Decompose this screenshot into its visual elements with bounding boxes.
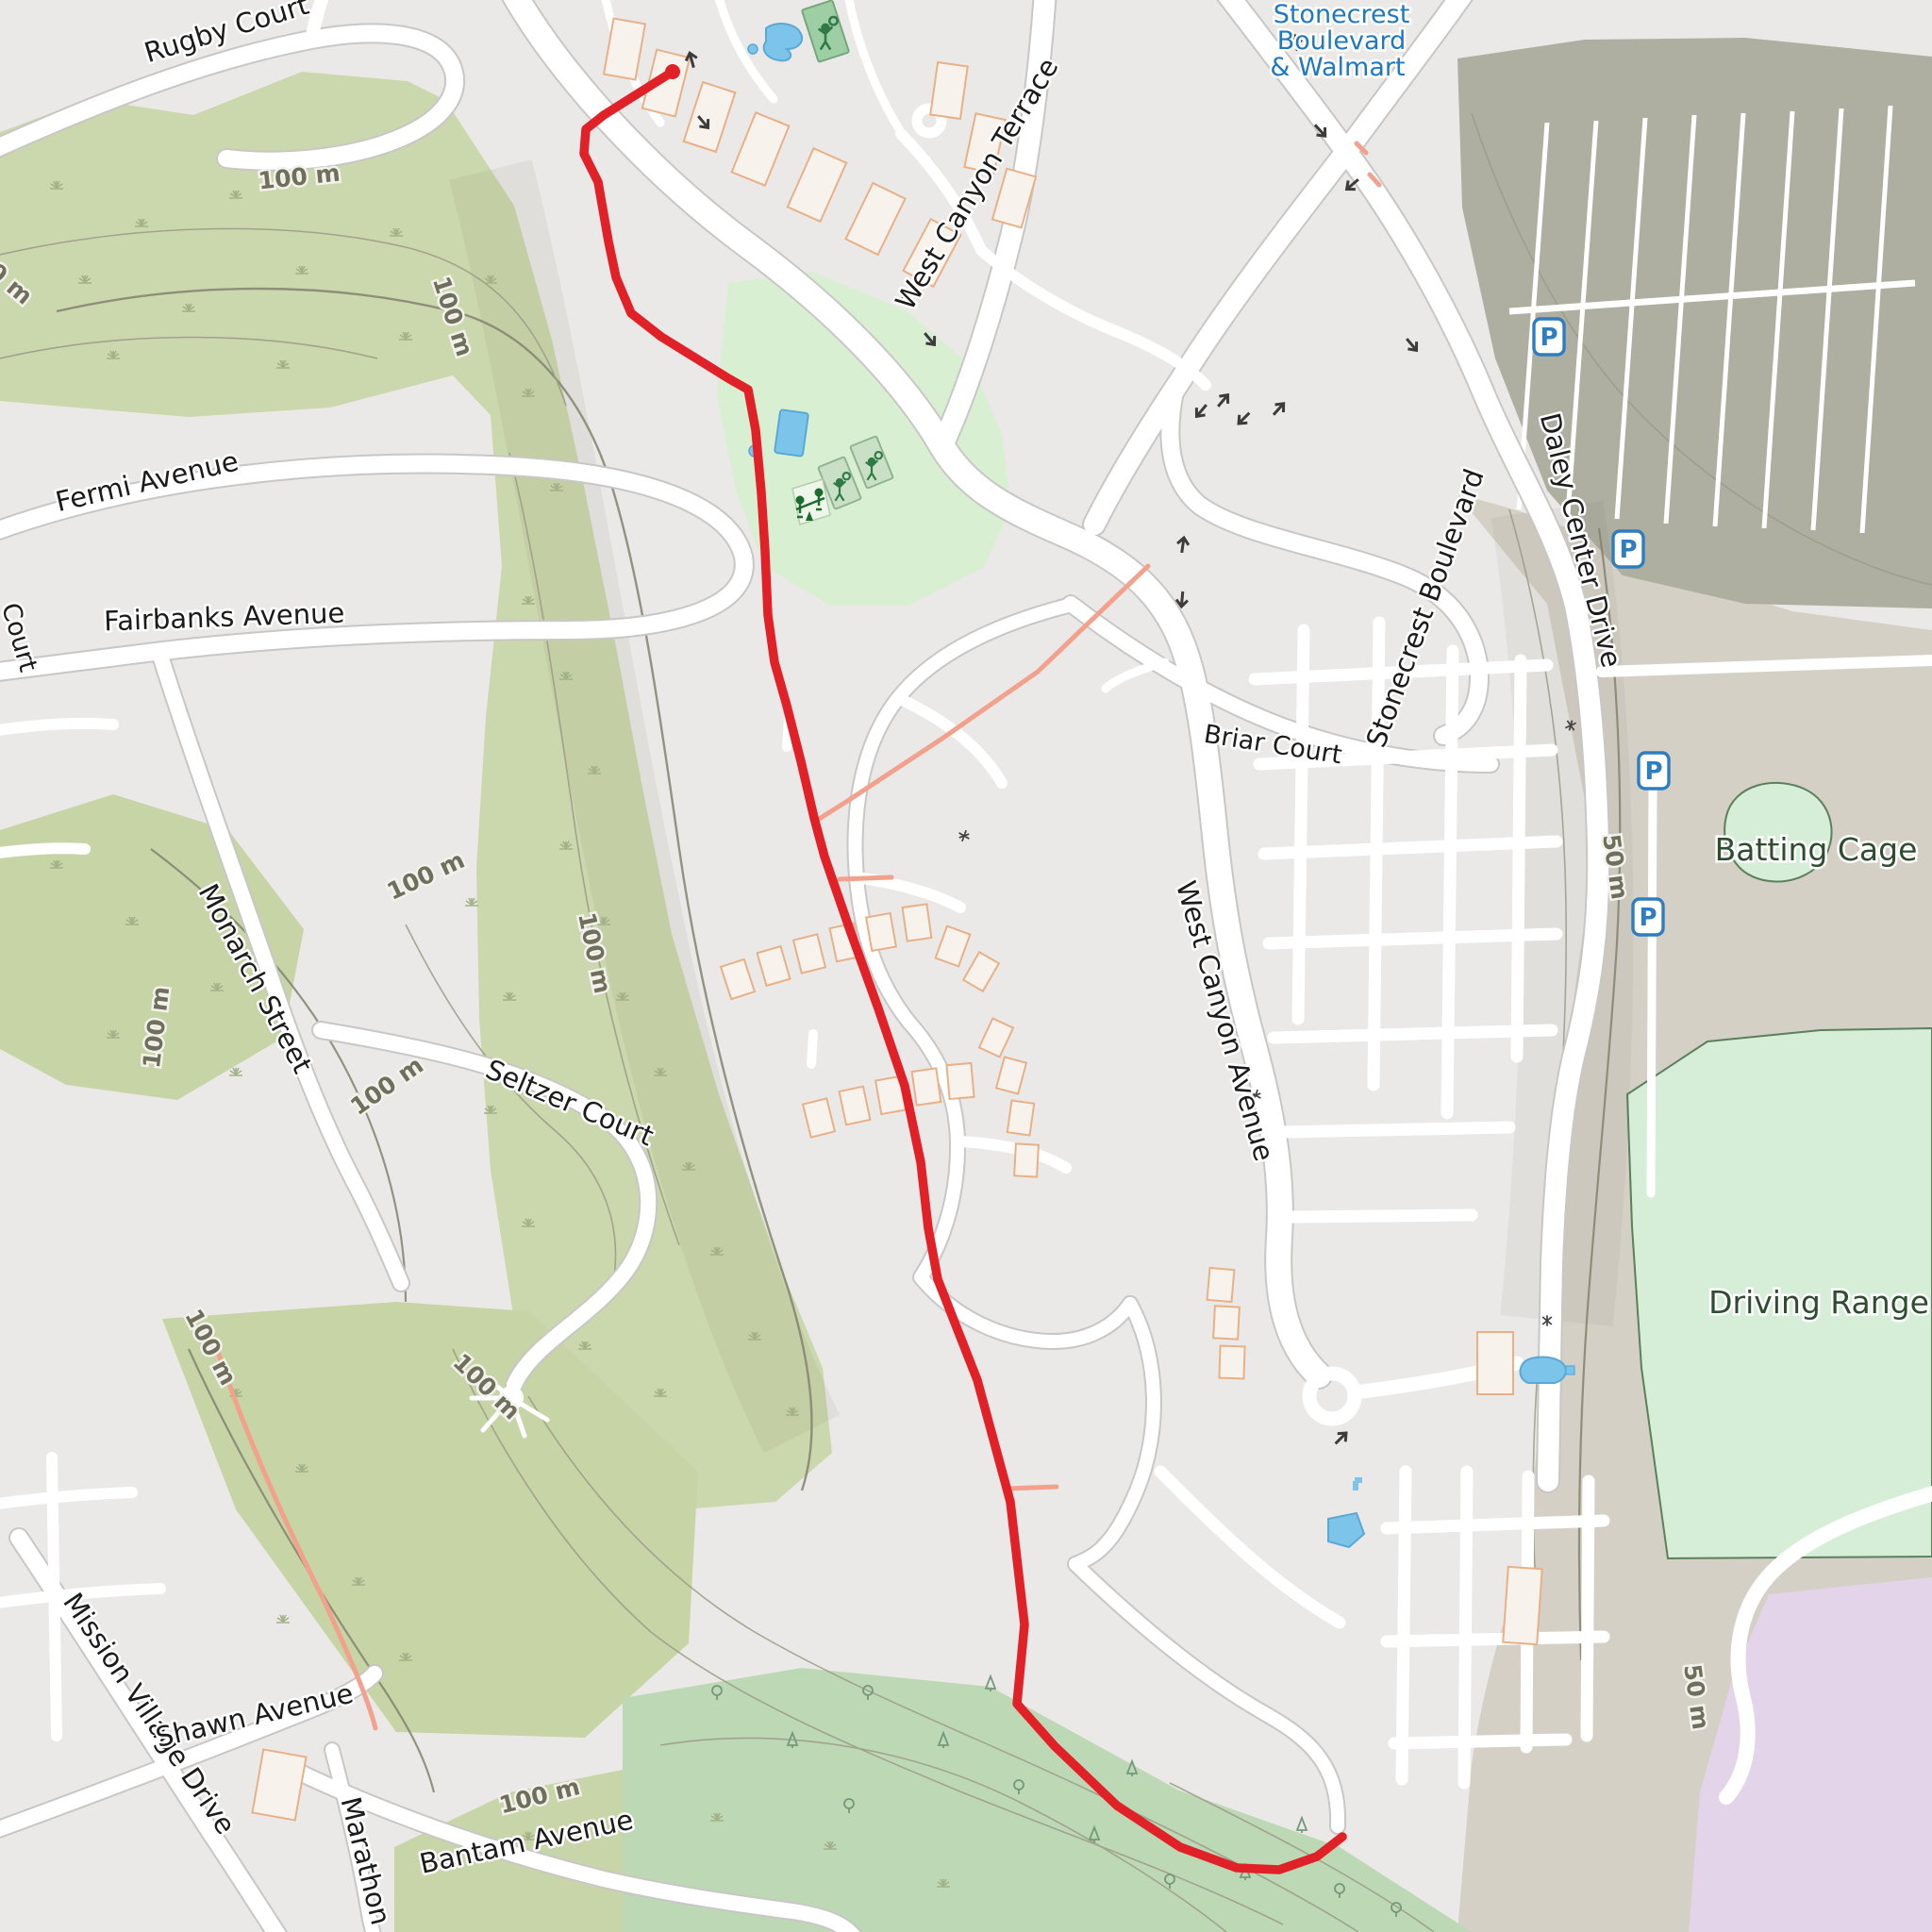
route-start-dot (665, 64, 680, 79)
poi-label-driving-range: Driving Range (1708, 1284, 1929, 1321)
transit-stop-line2: Boulevard (1277, 26, 1407, 56)
pool-icon (1521, 1357, 1566, 1383)
transit-stop-line3: & Walmart (1270, 53, 1405, 82)
poi-label-batting-cage: Batting Cage (1715, 831, 1918, 868)
building (1477, 1332, 1513, 1394)
park-pool-icon (774, 409, 808, 457)
transit-stop-line1: Stonecrest (1274, 0, 1410, 29)
transit-stop-label: Stonecrest Boulevard & Walmart (1270, 0, 1409, 82)
map-canvas[interactable]: P (0, 0, 1932, 1932)
